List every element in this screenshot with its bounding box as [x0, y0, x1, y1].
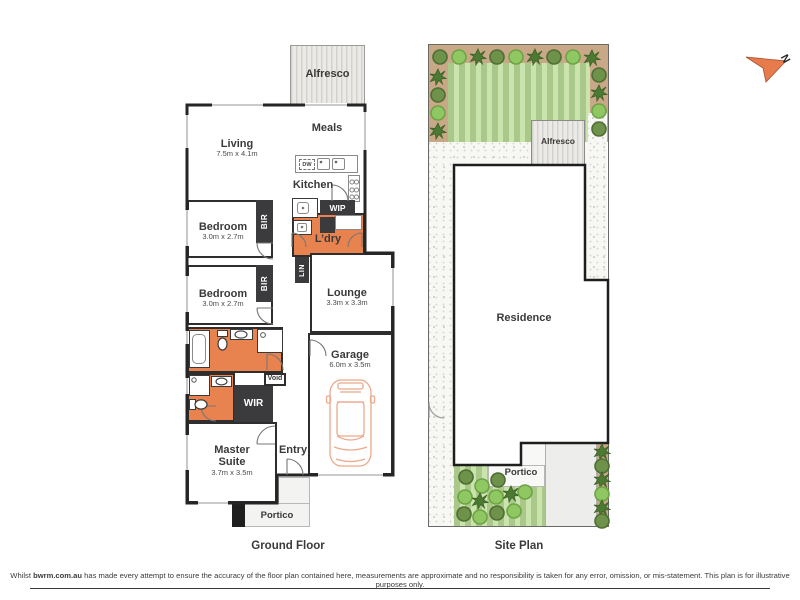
- disclaimer-brand: bwrm.com.au: [33, 571, 82, 580]
- floorplan-page: Alfresco BIR BIR LIN WIP WIR Void DW Mea…: [0, 0, 800, 600]
- fp-wip-pantry: WIP: [320, 200, 355, 215]
- fp-cupboard-block: [320, 217, 335, 233]
- site-plan-title: Site Plan: [479, 540, 559, 553]
- fp-kitchen-label: Kitchen: [273, 179, 353, 191]
- sp-portico-label: Portico: [481, 468, 561, 479]
- fp-sink-left: [317, 158, 330, 170]
- fp-shower1: [257, 329, 283, 353]
- fp-meals-label: Meals: [287, 122, 367, 134]
- compass-icon: N: [746, 53, 792, 82]
- sp-site-boundary: [428, 44, 609, 527]
- fp-garage-label: Garage6.0m x 3.5m: [310, 349, 390, 370]
- fp-laundry-bench: [335, 215, 362, 230]
- fp-bedroom1-label: Bedroom3.0m x 2.7m: [183, 221, 263, 242]
- fp-toilet1-tank: [217, 330, 228, 337]
- fp-laundry-label: L’dry: [295, 233, 361, 245]
- fp-trough-bowl: [297, 202, 309, 214]
- fp-lounge-label: Lounge3.3m x 3.3m: [307, 287, 387, 308]
- disclaimer-text: Whilst bwrm.com.au has made every attemp…: [0, 571, 800, 589]
- fp-vanity2: [211, 376, 232, 387]
- fp-portico-label: Portico: [237, 511, 317, 522]
- compass-north-letter: N: [778, 53, 792, 66]
- fp-linen-label: LIN: [299, 264, 306, 277]
- fp-sink-right: [332, 158, 345, 170]
- fp-shower2: [189, 375, 210, 396]
- fp-toilet2-tank: [189, 399, 196, 410]
- fp-living-label: Living7.5m x 4.1m: [197, 138, 277, 159]
- disclaimer-divider: [30, 588, 770, 589]
- fp-vanity1: [230, 329, 253, 340]
- fp-bathtub-inner: [192, 334, 206, 364]
- fp-washer-drum: [297, 223, 307, 232]
- fp-void-label: Void: [264, 375, 286, 383]
- fp-entry-label: Entry: [253, 444, 333, 456]
- fp-dishwasher: DW: [299, 159, 315, 170]
- fp-linen-cupboard: LIN: [295, 257, 309, 283]
- fp-master-label: Master Suite3.7m x 3.5m: [207, 444, 257, 477]
- sp-residence-label: Residence: [484, 312, 564, 324]
- plan-linework: N: [0, 0, 800, 600]
- sp-alfresco-label: Alfresco: [531, 137, 585, 147]
- fp-bedroom2-label: Bedroom3.0m x 2.7m: [183, 288, 263, 309]
- fp-wir-robe: WIR: [234, 385, 273, 422]
- ground-floor-title: Ground Floor: [228, 540, 348, 553]
- fp-alfresco-label: Alfresco: [290, 68, 365, 80]
